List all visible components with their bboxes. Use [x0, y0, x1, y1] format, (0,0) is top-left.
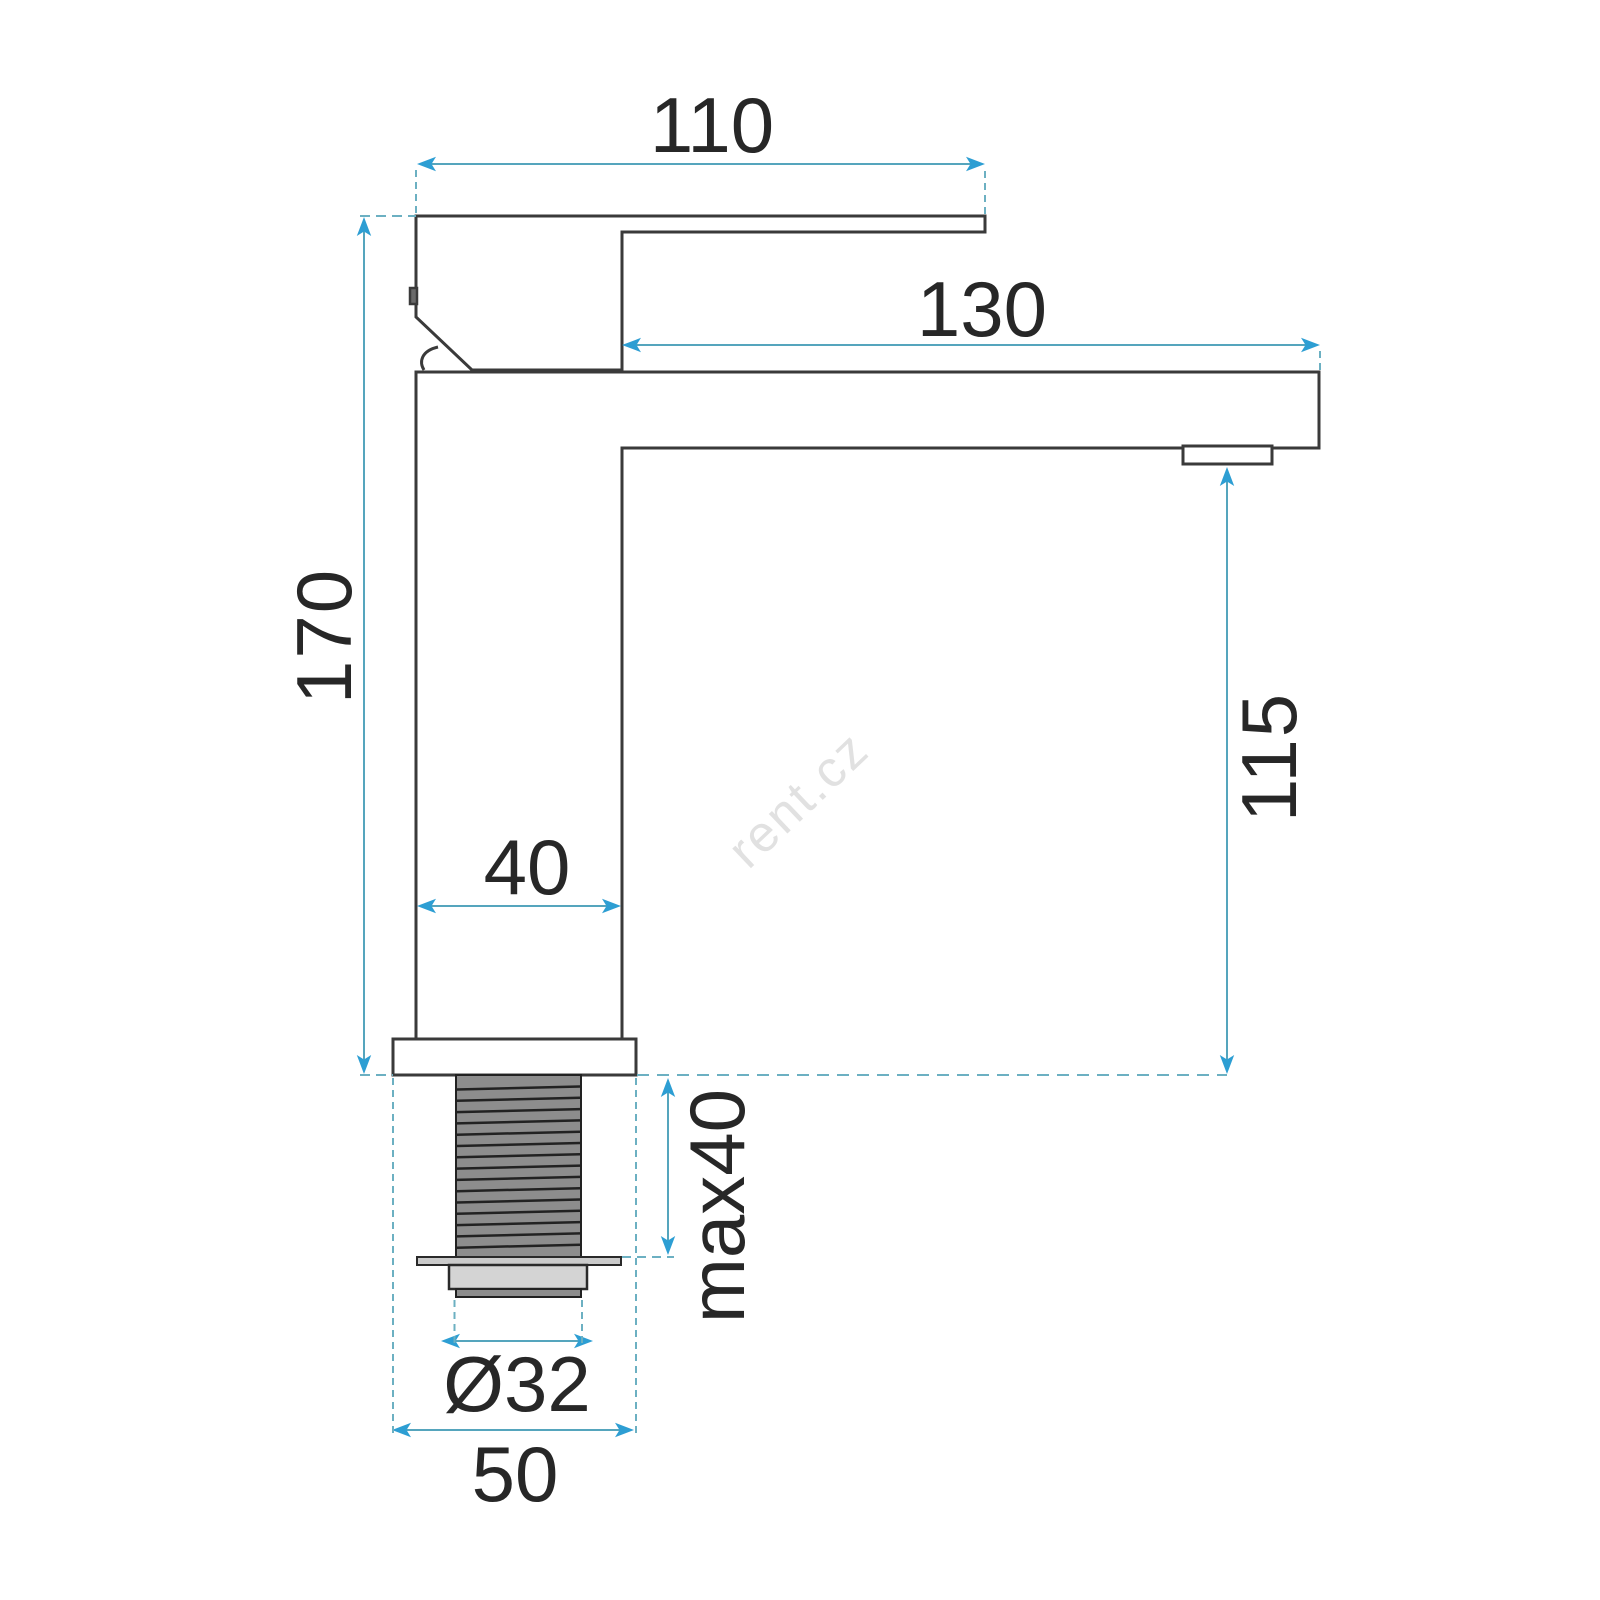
- svg-text:Ø32: Ø32: [443, 1340, 590, 1428]
- svg-text:max40: max40: [673, 1089, 761, 1323]
- svg-text:170: 170: [280, 568, 368, 704]
- svg-text:130: 130: [917, 265, 1047, 353]
- svg-text:115: 115: [1225, 692, 1313, 822]
- svg-text:50: 50: [472, 1430, 559, 1518]
- svg-text:40: 40: [484, 823, 571, 911]
- svg-text:110: 110: [650, 81, 774, 169]
